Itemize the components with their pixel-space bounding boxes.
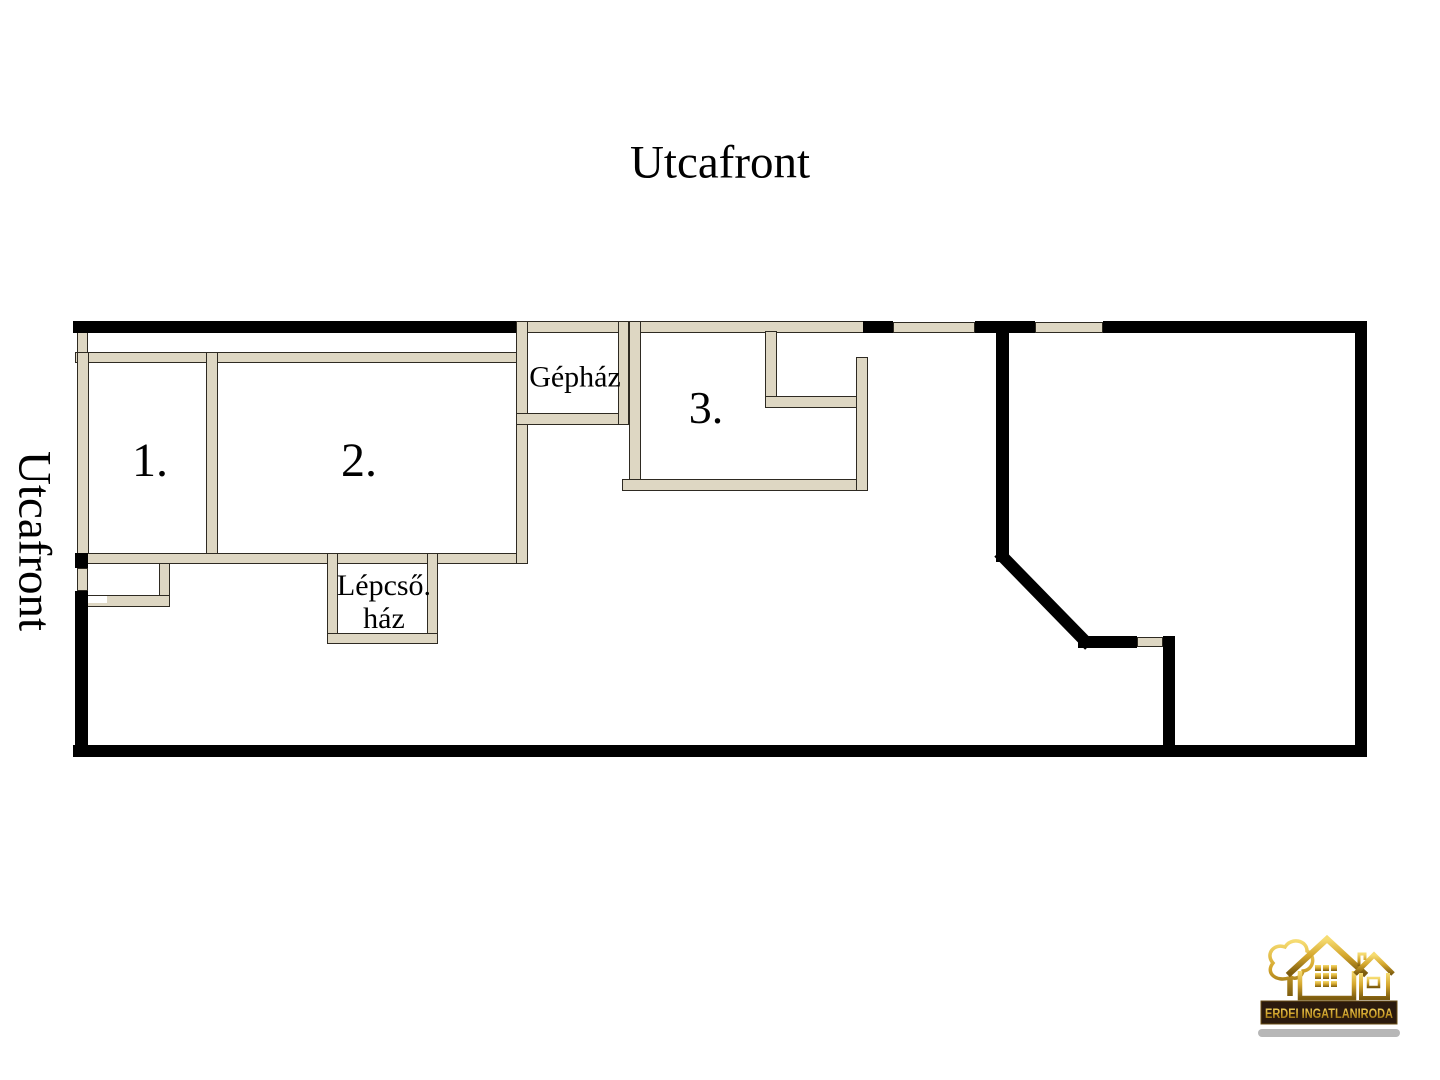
agency-logo: ERDEI INGATLANIRODA — [1258, 926, 1404, 1038]
window-left-lower — [77, 568, 88, 591]
wall-room3-bottom — [622, 479, 868, 491]
wall-room3-left — [629, 321, 641, 491]
wall-rooms-bottom — [75, 553, 528, 564]
window-top-a — [893, 322, 975, 333]
stairwell-label: Lépcső. ház — [337, 569, 431, 635]
wall-top-inner-run — [514, 321, 866, 333]
wall-right-outer — [1355, 321, 1367, 757]
floor-plan-canvas: Utcafront Utcafront 1. 2. 3. Gépház Lépc… — [0, 0, 1440, 1080]
wall-room3-hook-right — [856, 357, 868, 491]
window-top-b — [1035, 322, 1103, 333]
window-left-upper — [77, 332, 88, 354]
house-window-grid — [1315, 965, 1337, 987]
machine-room-label: Gépház — [529, 361, 621, 393]
street-front-label-left: Utcafront — [9, 451, 58, 631]
stairwell-label-line1: Lépcső. — [337, 569, 431, 602]
room-1-label: 1. — [132, 436, 168, 486]
wall-top-left-outer — [73, 321, 516, 333]
wall-top-segment-a — [863, 321, 893, 333]
house-icon — [1290, 939, 1364, 998]
street-front-label-top: Utcafront — [630, 138, 810, 187]
wall-left-outer-lower — [75, 591, 88, 749]
wall-machine-room-bottom — [516, 413, 630, 425]
wall-right-room-divider — [996, 331, 1009, 562]
agency-name: ERDEI INGATLANIRODA — [1265, 1006, 1393, 1021]
niche-door-opening — [88, 596, 107, 603]
room-3-label: 3. — [689, 384, 724, 432]
wall-top-right-outer — [1103, 321, 1367, 333]
room-2-label: 2. — [341, 436, 377, 486]
wall-strip-bottom — [75, 352, 517, 363]
small-house-icon — [1355, 954, 1393, 998]
wall-room3-notch-bottom — [765, 396, 858, 408]
wall-diagonal — [994, 548, 1093, 649]
wall-room2-right — [516, 321, 528, 564]
wall-room1-room2-divider — [206, 352, 218, 564]
wall-diagonal-foot — [1078, 636, 1137, 648]
wall-room1-left — [77, 352, 89, 555]
wall-right-room-lower — [1163, 636, 1175, 757]
wall-left-outer-upper — [75, 553, 88, 568]
stairwell-label-line2: ház — [337, 602, 431, 635]
window-bottom-right — [1137, 637, 1163, 647]
logo-shadow-bar — [1258, 1029, 1400, 1037]
